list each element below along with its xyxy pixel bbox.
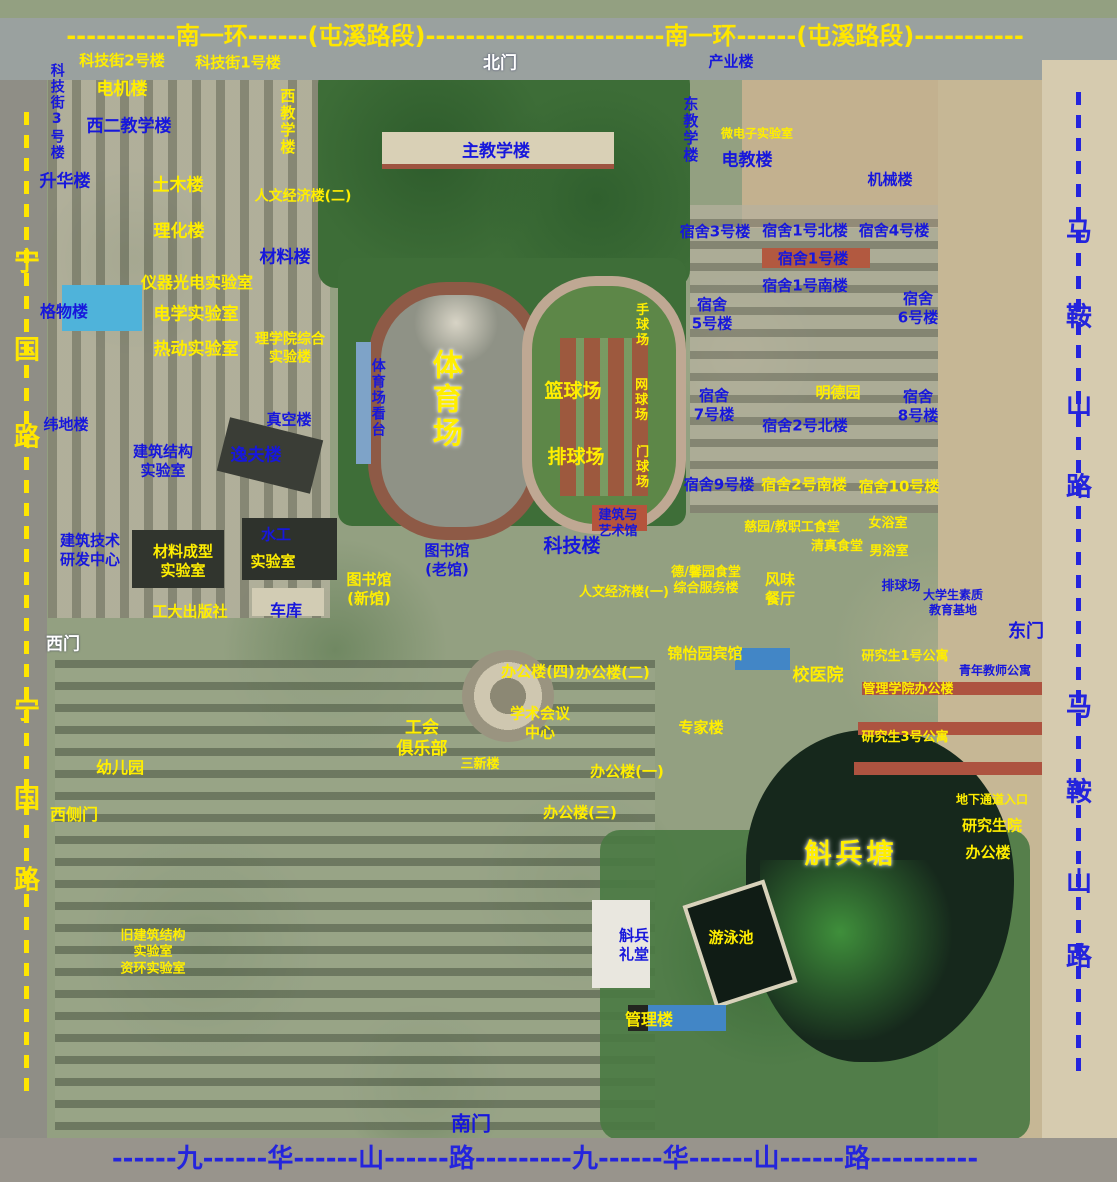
map-label-91: 游泳池 — [708, 929, 753, 948]
map-label-30: 体育场看台 — [368, 358, 386, 438]
map-label-27: 理学院综合 实验楼 — [255, 332, 325, 367]
hotel-blue-roof — [735, 648, 790, 670]
map-label-34: 网球场 — [631, 378, 647, 423]
road-char-ningguo-4: 国 — [14, 779, 40, 816]
map-label-46: 宿舍2号南楼 — [761, 476, 846, 495]
map-label-28: 宿舍 5号楼 — [692, 295, 732, 333]
map-label-73: 校医院 — [793, 665, 844, 686]
map-label-4: 科技街3号楼 — [47, 63, 65, 161]
map-label-63: 排球场 — [881, 579, 920, 595]
map-label-0: 科技街2号楼 — [79, 52, 164, 71]
road-char-maanshan-7: 路 — [1066, 937, 1092, 974]
map-label-68: 西门 — [46, 634, 80, 655]
map-label-87: 办公楼 — [965, 844, 1010, 863]
map-label-15: 人文经济楼(二) — [255, 188, 352, 206]
map-label-93: 南门 — [451, 1112, 491, 1137]
map-label-66: 车库 — [270, 601, 302, 621]
map-label-60: 人文经济楼(一) — [579, 585, 669, 601]
road-char-maanshan-0: 马 — [1066, 212, 1092, 249]
map-label-38: 宿舍 7号楼 — [694, 386, 734, 424]
map-label-85: 地下通道入口 — [956, 793, 1028, 808]
map-label-35: 排球场 — [547, 446, 604, 470]
map-label-2: 北门 — [483, 53, 517, 74]
map-label-18: 宿舍3号楼 — [680, 223, 750, 242]
grad-apartment-red-row-3 — [854, 762, 1049, 775]
map-label-89: 旧建筑结构 实验室 资环实验室 — [120, 929, 185, 978]
map-label-83: 办公楼(三) — [543, 804, 617, 823]
map-label-40: 宿舍2号北楼 — [762, 417, 847, 436]
map-label-72: 办公楼(二) — [576, 664, 650, 683]
map-label-32: 手球场 — [632, 303, 648, 348]
map-label-51: 水工 — [261, 526, 291, 545]
road-label-nanyihuan: -----------南一环------(屯溪路段)--------------… — [35, 16, 1055, 51]
map-label-37: 明德园 — [815, 384, 860, 403]
map-label-26: 热动实验室 — [154, 339, 239, 360]
map-label-61: 德/馨园食堂 综合服务楼 — [671, 565, 741, 598]
map-label-92: 管理楼 — [625, 1010, 673, 1030]
map-label-64: 大学生素质 教育基地 — [923, 588, 983, 618]
map-label-16: 理化楼 — [154, 221, 205, 242]
road-label-jiuhuashan: ------九------华------山------路---------九--… — [40, 1138, 1050, 1175]
map-label-53: 图书馆 (老馆) — [424, 541, 469, 579]
map-label-9: 西二教学楼 — [87, 116, 172, 137]
map-label-52: 实验室 — [250, 553, 295, 572]
map-label-56: 女浴室 — [868, 516, 907, 532]
pond-trees — [760, 860, 960, 1040]
map-label-75: 管理学院办公楼 — [862, 682, 953, 698]
map-label-39: 宿舍 8号楼 — [898, 387, 938, 425]
map-label-29: 宿舍 6号楼 — [898, 289, 938, 327]
map-label-77: 工会 俱乐部 — [397, 718, 448, 761]
map-label-78: 专家楼 — [678, 719, 723, 738]
road-char-maanshan-2: 山 — [1066, 385, 1092, 422]
map-label-88: 斛兵塘 — [805, 838, 898, 872]
map-label-55: 慈园/教职工食堂 — [744, 520, 840, 536]
road-char-maanshan-5: 鞍 — [1066, 772, 1092, 809]
road-char-maanshan-3: 路 — [1066, 467, 1092, 504]
map-label-71: 办公楼(四) — [501, 663, 575, 682]
terrain-north-park — [318, 66, 690, 288]
map-label-48: 建筑与 艺术馆 — [598, 508, 637, 541]
map-label-70: 研究生1号公寓 — [861, 649, 948, 665]
map-label-69: 锦怡园宾馆 — [667, 645, 742, 664]
map-label-36: 门球场 — [632, 445, 648, 490]
map-label-67: 东门 — [1008, 621, 1044, 644]
map-label-19: 宿舍1号北楼 — [762, 222, 847, 241]
map-label-43: 建筑结构 实验室 — [133, 442, 193, 480]
map-label-90: 斛兵 礼堂 — [619, 926, 649, 964]
road-char-ningguo-5: 路 — [14, 860, 40, 897]
map-label-5: 电机楼 — [97, 79, 148, 100]
map-label-42: 纬地楼 — [43, 416, 88, 435]
map-label-31: 体育场 — [425, 349, 463, 451]
map-label-24: 格物楼 — [40, 302, 88, 322]
map-label-76: 学术会议 中心 — [510, 704, 570, 742]
map-label-20: 宿舍4号楼 — [859, 222, 929, 241]
map-label-57: 清真食堂 — [811, 539, 863, 555]
road-char-ningguo-1: 国 — [14, 330, 40, 367]
road-char-ningguo-0: 宁 — [14, 242, 40, 279]
map-label-33: 篮球场 — [544, 380, 601, 404]
map-label-65: 工大出版社 — [152, 603, 227, 622]
map-label-50: 材料成型 实验室 — [153, 542, 213, 580]
map-label-74: 青年教师公寓 — [959, 664, 1031, 679]
map-label-80: 三新楼 — [460, 757, 499, 773]
road-char-maanshan-1: 鞍 — [1066, 297, 1092, 334]
map-label-25: 电学实验室 — [154, 304, 239, 325]
map-label-41: 真空楼 — [266, 411, 311, 430]
map-label-62: 风味 餐厅 — [765, 570, 795, 608]
map-label-17: 材料楼 — [260, 247, 311, 268]
map-label-6: 西教学楼 — [278, 88, 297, 156]
road-char-ningguo-3: 宁 — [14, 690, 40, 727]
map-label-11: 电教楼 — [722, 150, 773, 171]
campus-satellite-map: -----------南一环------(屯溪路段)--------------… — [0, 0, 1117, 1182]
map-label-12: 机械楼 — [867, 171, 912, 190]
road-char-maanshan-4: 马 — [1066, 687, 1092, 724]
map-label-84: 西侧门 — [50, 805, 98, 825]
map-label-7: 东教学楼 — [681, 96, 700, 164]
map-label-44: 逸夫楼 — [231, 445, 282, 466]
map-label-54: 科技楼 — [543, 535, 600, 559]
map-label-3: 产业楼 — [708, 53, 753, 72]
map-label-49: 建筑技术 研发中心 — [60, 531, 120, 569]
map-label-22: 宿舍1号南楼 — [762, 277, 847, 296]
map-label-58: 男浴室 — [869, 544, 908, 560]
map-label-59: 图书馆 (新馆) — [346, 570, 391, 608]
map-label-47: 宿舍10号楼 — [859, 478, 940, 497]
map-label-79: 研究生3号公寓 — [861, 730, 948, 746]
map-label-1: 科技街1号楼 — [195, 54, 280, 73]
map-label-8: 微电子实验室 — [721, 127, 793, 142]
road-char-ningguo-2: 路 — [14, 417, 40, 454]
map-label-86: 研究生院 — [962, 817, 1022, 836]
map-label-13: 升华楼 — [40, 171, 91, 192]
map-label-21: 宿舍1号楼 — [778, 250, 848, 269]
map-label-23: 仪器光电实验室 — [141, 273, 253, 293]
map-label-82: 幼儿园 — [96, 758, 144, 778]
road-char-maanshan-6: 山 — [1066, 862, 1092, 899]
map-label-14: 土木楼 — [153, 175, 204, 196]
map-label-81: 办公楼(一) — [590, 763, 664, 782]
map-label-45: 宿舍9号楼 — [684, 476, 754, 495]
map-label-10: 主教学楼 — [462, 141, 530, 162]
